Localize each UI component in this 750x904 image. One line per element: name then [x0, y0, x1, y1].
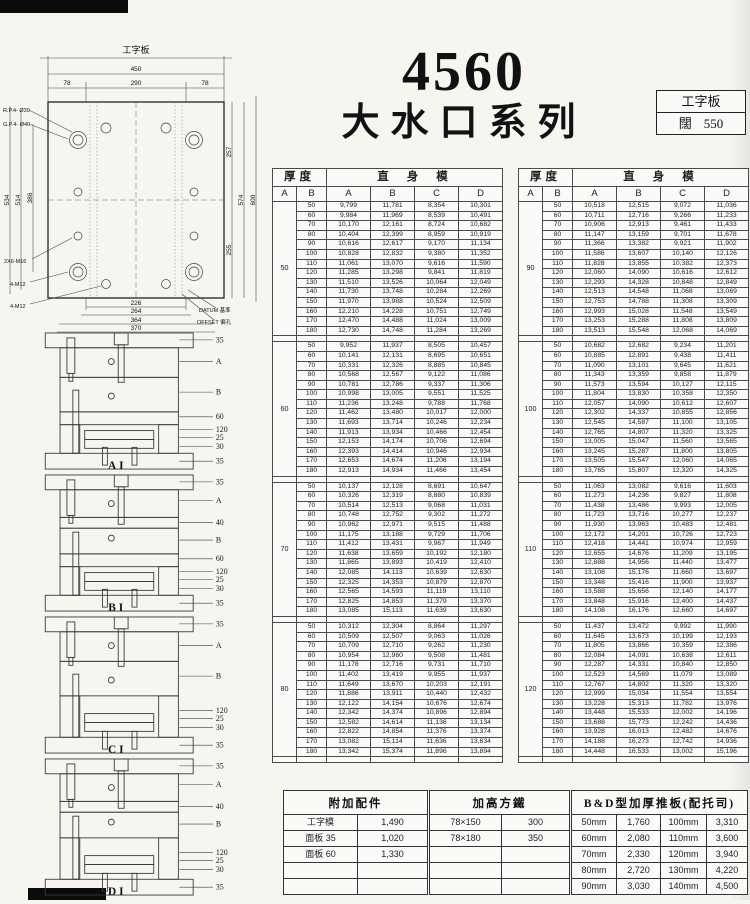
table-cell: 1,760 — [617, 815, 661, 831]
table-cell: 10,404 — [327, 230, 371, 240]
table-cell: 11,782 — [661, 699, 705, 709]
size-row: 14013,10815,17611,66013,697 — [519, 568, 749, 578]
table-cell: 10,639 — [415, 568, 459, 578]
table-cell: 11,970 — [327, 297, 371, 307]
table-cell: 9,921 — [661, 240, 705, 250]
straight-body-header: 直身模 — [573, 169, 749, 187]
table-cell: 9,616 — [415, 259, 459, 269]
size-table-left: 厚度直身模ABABCD50509,79911,7818,35410,301609… — [272, 168, 503, 763]
size-row: 8011,14713,1599,70111,678 — [519, 230, 749, 240]
table-cell: 170 — [543, 457, 573, 467]
mold-diagram-d: 35A40B120253035DI — [14, 757, 254, 899]
size-row: 12011,46213,48010,01712,000 — [273, 409, 503, 419]
size-row: 17012,47014,48811,02413,009 — [273, 317, 503, 327]
column-header: B — [617, 187, 661, 202]
table-cell — [430, 847, 502, 863]
table-cell: 12,418 — [573, 540, 617, 550]
table-cell: 170 — [297, 317, 327, 327]
callout-label: 60 — [216, 412, 224, 421]
table-cell: 110 — [543, 680, 573, 690]
table-cell: 11,865 — [327, 559, 371, 569]
table-cell: 12,060 — [573, 269, 617, 279]
plate-type-label: 工字板 — [657, 91, 745, 112]
table-cell: 110 — [297, 399, 327, 409]
table-cell: 15,288 — [617, 317, 661, 327]
table-row — [430, 863, 570, 879]
table-cell: 8,880 — [415, 492, 459, 502]
table-cell: 13,505 — [573, 457, 617, 467]
table-cell: 12,822 — [327, 728, 371, 738]
table-cell: 2,330 — [617, 847, 661, 863]
table-cell: 12,304 — [371, 622, 415, 632]
table-cell: 70 — [543, 221, 573, 231]
table-cell: 120 — [543, 409, 573, 419]
thickness-header: 厚度 — [273, 169, 327, 187]
table-cell: 60mm — [572, 831, 617, 847]
table-cell: 10,301 — [459, 202, 503, 212]
table-cell: 10,896 — [415, 709, 459, 719]
dim-264: 264 — [131, 308, 142, 315]
size-row: 8012,08414,09110,63812,611 — [519, 651, 749, 661]
table-cell: 10,879 — [415, 578, 459, 588]
table-cell: 8,539 — [415, 211, 459, 221]
mold-section-drawing: 35A40B60120253035BI — [14, 473, 254, 615]
table-cell: 12,870 — [459, 578, 503, 588]
callout-label: A — [216, 641, 222, 650]
table-cell: 70 — [543, 501, 573, 511]
table-cell: 150 — [543, 438, 573, 448]
table-row — [430, 847, 570, 863]
table-cell: 12,660 — [661, 607, 705, 617]
table-cell — [430, 879, 502, 895]
size-row: 18013,34215,37411,89613,894 — [273, 747, 503, 757]
table-cell: 12,153 — [327, 438, 371, 448]
table-cell: 180 — [543, 747, 573, 757]
table-cell: 13,370 — [459, 597, 503, 607]
table-cell: 12,710 — [371, 642, 415, 652]
table-cell: 15,028 — [617, 307, 661, 317]
table-cell: 14,441 — [617, 540, 661, 550]
callout-label: 35 — [216, 883, 224, 892]
table-cell: 13,454 — [459, 467, 503, 477]
table-row: 面板 601,330 — [284, 847, 428, 863]
table-cell: 10,064 — [415, 278, 459, 288]
table-cell: 13,688 — [573, 718, 617, 728]
callout-label: A — [216, 357, 222, 366]
table-cell: 12,513 — [371, 501, 415, 511]
bd-ejector-plate-table: B&D型加厚推板(配托司)50mm1,760100mm3,31060mm2,08… — [571, 790, 748, 895]
table-cell: 160 — [297, 728, 327, 738]
header-row: 附加配件 — [284, 791, 428, 815]
size-row: 15013,00515,04711,56013,565 — [519, 438, 749, 448]
table-cell: 13,911 — [371, 690, 415, 700]
table-cell: 12,172 — [573, 530, 617, 540]
table-cell: 13,448 — [573, 709, 617, 719]
callout-label: 40 — [216, 518, 224, 527]
table-cell: 11,209 — [661, 549, 705, 559]
table-cell: 14,788 — [617, 297, 661, 307]
table-cell: 12,515 — [617, 202, 661, 212]
table-cell: 10,845 — [459, 361, 503, 371]
column-header: D — [459, 187, 503, 202]
table-cell: 11,930 — [573, 521, 617, 531]
table-cell: 9,072 — [661, 202, 705, 212]
table-cell: 11,462 — [327, 409, 371, 419]
table-cell: 90 — [297, 661, 327, 671]
table-cell: 12,971 — [371, 521, 415, 531]
table-cell: 9,955 — [415, 670, 459, 680]
table-cell: 8,505 — [415, 342, 459, 352]
table-cell: 9,841 — [415, 269, 459, 279]
callout-label: 35 — [216, 457, 224, 466]
spacer-cell — [273, 757, 297, 763]
dim-600: 600 — [250, 194, 257, 205]
table-cell: 140 — [543, 288, 573, 298]
table-cell: 80 — [297, 371, 327, 381]
table-cell: 9,799 — [327, 202, 371, 212]
riser-block-table: 加高方鐵78×15030078×180350 — [429, 790, 570, 895]
table-cell: 100 — [297, 249, 327, 259]
table-cell: 12,913 — [617, 221, 661, 231]
table-cell: 10,203 — [415, 680, 459, 690]
m12-annotation-1: 4-M12 — [10, 282, 26, 288]
table-cell: 10,616 — [661, 269, 705, 279]
table-cell: 10,358 — [661, 390, 705, 400]
table-cell — [284, 879, 358, 895]
table-row: 面板 351,020 — [284, 831, 428, 847]
table-cell: 180 — [543, 467, 573, 477]
table-cell: 11,024 — [415, 317, 459, 327]
table-cell: 9,170 — [415, 240, 459, 250]
table-cell: 9,337 — [415, 380, 459, 390]
table-cell: 12,523 — [573, 670, 617, 680]
table-cell: 14,802 — [617, 680, 661, 690]
table-cell: 11,768 — [459, 399, 503, 409]
size-row: 10011,40213,4199,95511,937 — [273, 670, 503, 680]
size-row: 15012,75314,78811,30813,309 — [519, 297, 749, 307]
table-cell: 11,230 — [459, 642, 503, 652]
table-cell: 10,331 — [327, 361, 371, 371]
table-cell: 350 — [502, 831, 570, 847]
table-cell: 11,879 — [705, 371, 749, 381]
mold-type-label: AI — [108, 460, 127, 472]
table-cell: 13,673 — [617, 632, 661, 642]
table-cell: 80 — [543, 230, 573, 240]
dim-574: 574 — [238, 194, 245, 205]
size-row: 6010,71112,7169,26611,233 — [519, 211, 749, 221]
table-cell: 12,509 — [459, 297, 503, 307]
table-cell: 13,069 — [705, 288, 749, 298]
table-cell: 11,639 — [415, 607, 459, 617]
size-row: 16012,82214,85411,37613,374 — [273, 728, 503, 738]
table-cell: 13,670 — [371, 680, 415, 690]
table-cell: 160 — [297, 447, 327, 457]
table-row — [430, 879, 570, 895]
header-row: 加高方鐵 — [430, 791, 570, 815]
size-row: 15013,34815,41611,90013,937 — [519, 578, 749, 588]
table-row: 90mm3,030140mm4,500 — [572, 879, 748, 895]
table-cell: 14,154 — [371, 699, 415, 709]
table-cell: 14,113 — [371, 568, 415, 578]
size-row: 60509,95211,9378,50510,457 — [273, 342, 503, 352]
dim-290: 290 — [131, 80, 142, 87]
table-cell: 11,638 — [327, 549, 371, 559]
mold-diagram-a: 35AB60120253035AI — [14, 331, 254, 473]
table-cell: 10,246 — [415, 419, 459, 429]
table-cell: 100 — [297, 390, 327, 400]
callout-label: 35 — [216, 619, 224, 628]
table-cell: 13,101 — [617, 361, 661, 371]
table-cell: 70 — [297, 642, 327, 652]
table-cell: 14,587 — [617, 419, 661, 429]
table-cell: 100 — [297, 530, 327, 540]
size-row: 9012,28714,33110,84012,850 — [519, 661, 749, 671]
table-cell: 11,068 — [661, 288, 705, 298]
drawing-title: 工字板 — [122, 44, 149, 55]
table-cell: 面板 60 — [284, 847, 358, 863]
table-cell: 12,653 — [327, 457, 371, 467]
table-cell: 11,466 — [415, 467, 459, 477]
size-row: 7010,70912,7109,26211,230 — [273, 642, 503, 652]
table-cell: 8,724 — [415, 221, 459, 231]
table-cell: 9,266 — [661, 211, 705, 221]
table-cell: 60 — [543, 492, 573, 502]
size-row: 18012,73014,74811,28413,269 — [273, 326, 503, 336]
table-cell: 70mm — [572, 847, 617, 863]
table-cell: 100 — [297, 670, 327, 680]
size-row: 10011,58613,60710,14012,126 — [519, 249, 749, 259]
table-cell: 90 — [543, 661, 573, 671]
table-cell: 11,320 — [661, 680, 705, 690]
callout-label: A — [216, 496, 222, 505]
table-cell: 13,374 — [459, 728, 503, 738]
table-cell: 11,273 — [573, 492, 617, 502]
table-cell: 14,065 — [705, 457, 749, 467]
table-cell: 130mm — [661, 863, 707, 879]
table-cell: 15,533 — [617, 709, 661, 719]
size-row: 18014,10816,17612,66014,697 — [519, 607, 749, 617]
table-cell: 11,284 — [415, 326, 459, 336]
table-cell: 8,695 — [415, 351, 459, 361]
table-cell: 11,343 — [573, 371, 617, 381]
size-row: 905010,51812,5159,07211,036 — [519, 202, 749, 212]
table-cell: 130 — [543, 278, 573, 288]
table-cell: 10,781 — [327, 380, 371, 390]
table-cell: 50 — [543, 622, 573, 632]
table-cell: 10,141 — [327, 351, 371, 361]
table-cell: 10,848 — [661, 278, 705, 288]
table-cell: 4,500 — [707, 879, 748, 895]
table-cell: 14,325 — [705, 467, 749, 477]
table-cell: 150 — [543, 578, 573, 588]
table-cell — [284, 863, 358, 879]
size-row: 13011,86513,89310,41912,410 — [273, 559, 503, 569]
table-cell: 12,694 — [459, 438, 503, 448]
table-cell: 15,047 — [617, 438, 661, 448]
table-cell: 15,374 — [371, 747, 415, 757]
table-cell: 15,656 — [617, 588, 661, 598]
table-cell: 10,277 — [661, 511, 705, 521]
plate-info-box: 工字板 闊 550 — [656, 90, 746, 135]
table-cell: 12,607 — [705, 399, 749, 409]
size-row: 15011,97013,98810,52412,509 — [273, 297, 503, 307]
table-cell: 14,091 — [617, 651, 661, 661]
table-cell: 11,233 — [705, 211, 749, 221]
table-cell: 11,990 — [705, 622, 749, 632]
size-row: 10012,17214,20110,72612,723 — [519, 530, 749, 540]
table-title: 附加配件 — [284, 791, 428, 815]
size-row: 7011,43813,4869,99312,005 — [519, 501, 749, 511]
size-row: 9010,78112,7869,33711,306 — [273, 380, 503, 390]
table-cell: 12,128 — [371, 482, 415, 492]
table-cell: 12,753 — [573, 297, 617, 307]
table-cell: 11,560 — [661, 438, 705, 448]
table-cell: 120 — [297, 690, 327, 700]
dim-78-left: 78 — [63, 80, 71, 87]
table-cell: 12,131 — [371, 351, 415, 361]
table-cell: 13,830 — [617, 390, 661, 400]
table-cell: 11,412 — [327, 540, 371, 550]
size-row: 13012,54514,58711,10013,105 — [519, 419, 749, 429]
dim-364: 364 — [131, 317, 142, 324]
table-cell: 14,807 — [617, 428, 661, 438]
table-cell: 11,438 — [573, 501, 617, 511]
table-cell: 10,682 — [573, 342, 617, 352]
size-row: 18013,08515,11311,63913,630 — [273, 607, 503, 617]
table-cell: 13,893 — [371, 559, 415, 569]
size-row: 10010,99813,0059,55111,525 — [273, 390, 503, 400]
table-cell: 13,070 — [371, 259, 415, 269]
size-row: 1105011,06313,0829,61611,603 — [519, 482, 749, 492]
table-cell: 78×150 — [430, 815, 502, 831]
table-cell: 90 — [543, 521, 573, 531]
spacer-cell — [519, 757, 543, 763]
table-cell: 10,676 — [415, 699, 459, 709]
table-cell: 12,342 — [327, 709, 371, 719]
table-cell: 11,402 — [327, 670, 371, 680]
table-row: 80mm2,720130mm4,220 — [572, 863, 748, 879]
thickness-a-value: 60 — [273, 342, 297, 476]
table-cell: 15,548 — [617, 326, 661, 336]
dim-534: 534 — [4, 194, 11, 205]
table-cell: 130 — [297, 559, 327, 569]
table-cell: 13,228 — [573, 699, 617, 709]
callout-label: A — [216, 780, 222, 789]
table-cell: 180 — [297, 467, 327, 477]
size-row: 18013,51315,54812,06814,069 — [519, 326, 749, 336]
table-cell: 50 — [543, 342, 573, 352]
table-cell: 14,236 — [617, 492, 661, 502]
mold-diagram-column: 35AB60120253035AI 35A40B60120253035BI 35… — [14, 331, 254, 899]
table-cell: 13,937 — [705, 578, 749, 588]
size-row: 17013,84815,91612,40014,437 — [519, 597, 749, 607]
thickness-a-value: 90 — [519, 202, 543, 336]
table-cell: 11,804 — [573, 390, 617, 400]
table-cell: 13,480 — [371, 409, 415, 419]
mold-diagram-c: 35AB120253035CI — [14, 615, 254, 757]
table-cell: 9,731 — [415, 661, 459, 671]
table-cell: 130 — [543, 559, 573, 569]
size-row: 13012,88814,95611,44013,477 — [519, 559, 749, 569]
table-cell: 120 — [543, 690, 573, 700]
table-cell: 11,026 — [459, 632, 503, 642]
size-row: 18012,91314,93411,46613,454 — [273, 467, 503, 477]
table-cell: 9,729 — [415, 530, 459, 540]
table-cell: 11,781 — [371, 202, 415, 212]
table-cell: 9,461 — [661, 221, 705, 231]
column-header: C — [415, 187, 459, 202]
table-cell: 12,742 — [661, 738, 705, 748]
table-cell: 140 — [543, 428, 573, 438]
table-cell: 13,269 — [459, 326, 503, 336]
table-cell: 12,891 — [617, 351, 661, 361]
table-cell: 170 — [543, 597, 573, 607]
table-cell: 60 — [543, 351, 573, 361]
size-row: 9010,96212,9719,51511,488 — [273, 521, 503, 531]
table-cell: 14,593 — [371, 588, 415, 598]
table-cell: 110 — [297, 680, 327, 690]
table-cell: 13,134 — [459, 718, 503, 728]
size-row: 13011,51013,52610,06412,049 — [273, 278, 503, 288]
table-cell: 10,974 — [661, 540, 705, 550]
table-cell: 12,432 — [459, 690, 503, 700]
thickness-a-value: 110 — [519, 482, 543, 616]
table-cell: 13,320 — [705, 680, 749, 690]
callout-label: 30 — [216, 442, 224, 451]
table-cell: 70 — [297, 221, 327, 231]
table-cell: 12,234 — [459, 419, 503, 429]
table-cell: 60 — [297, 632, 327, 642]
table-cell: 9,262 — [415, 642, 459, 652]
model-number: 4560 — [268, 44, 660, 100]
table-cell: 14,174 — [371, 438, 415, 448]
table-cell: 9,645 — [661, 361, 705, 371]
table-cell: 12,057 — [573, 399, 617, 409]
size-row: 15012,58214,61411,13613,134 — [273, 718, 503, 728]
table-cell: 12,767 — [573, 680, 617, 690]
callout-label: 60 — [216, 554, 224, 563]
size-row: 6010,88512,8919,43811,411 — [519, 351, 749, 361]
table-cell: 11,723 — [573, 511, 617, 521]
table-cell: 10,828 — [327, 249, 371, 259]
table-cell: 9,234 — [661, 342, 705, 352]
table-cell: 11,805 — [573, 642, 617, 652]
table-cell: 11,949 — [459, 540, 503, 550]
table-cell: 16,176 — [617, 607, 661, 617]
size-row: 17013,08215,11411,63613,634 — [273, 738, 503, 748]
table-cell: 3,940 — [707, 847, 748, 863]
size-row: 8011,34313,3599,85811,879 — [519, 371, 749, 381]
table-cell: 11,525 — [459, 390, 503, 400]
table-cell: 13,110 — [459, 588, 503, 598]
header-row: 厚度直身模 — [519, 169, 749, 187]
size-row: 6010,32612,3198,88010,839 — [273, 492, 503, 502]
table-cell: 14,414 — [371, 447, 415, 457]
table-cell: 140 — [297, 568, 327, 578]
table-cell: 12,084 — [573, 651, 617, 661]
plate-width-row: 闊 550 — [657, 112, 745, 134]
table-cell: 14,569 — [617, 670, 661, 680]
table-cell: 80 — [543, 651, 573, 661]
table-cell: 2,720 — [617, 863, 661, 879]
table-cell: 11,236 — [327, 399, 371, 409]
thickness-a-value: 100 — [519, 342, 543, 476]
table-cell: 12,325 — [327, 578, 371, 588]
table-cell: 16,273 — [617, 738, 661, 748]
table-cell: 10,748 — [327, 511, 371, 521]
size-row: 12012,99915,03411,55413,554 — [519, 690, 749, 700]
table-cell: 13,588 — [573, 588, 617, 598]
